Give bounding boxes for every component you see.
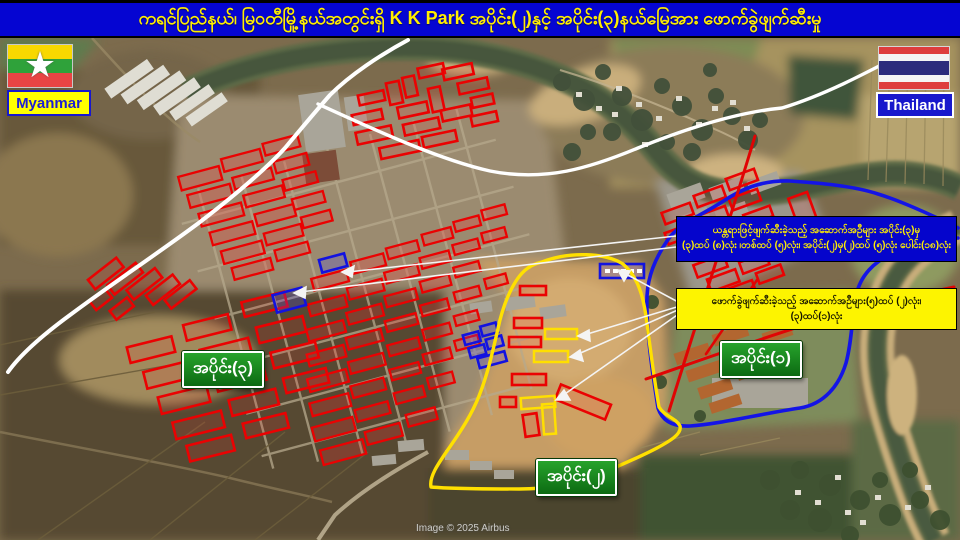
callout-machinery-box: ယန္တရားဖြင့်ဖျက်ဆီးခဲ့သည့် အဆောက်အဦများ … — [676, 216, 957, 262]
satellite-map — [0, 0, 960, 540]
title-text: ကရင်ပြည်နယ်၊ မြဝတီမြို့နယ်အတွင်းရှိ K K … — [139, 6, 822, 33]
map-attribution: Image © 2025 Airbus — [416, 523, 510, 534]
myanmar-flag-star-icon: ★ — [24, 47, 56, 83]
satellite-map-graphic — [0, 0, 960, 540]
myanmar-flag: ★ — [7, 44, 73, 88]
callout-explosive-line2: (၃)ထပ်(၁)လုံး — [677, 309, 956, 324]
title-bar: ကရင်ပြည်နယ်၊ မြဝတီမြို့နယ်အတွင်းရှိ K K … — [0, 0, 960, 38]
myanmar-label: Myanmar — [7, 90, 91, 116]
callout-machinery-line1: ယန္တရားဖြင့်ဖျက်ဆီးခဲ့သည့် အဆောက်အဦများ … — [677, 223, 956, 238]
callout-explosive-line1: ဖောက်ခွဲဖျက်ဆီးခဲ့သည့် အဆောက်အဦများ(၅)ထပ… — [677, 294, 956, 309]
callout-machinery-line2: (၃)ထပ် (၈)လုံး ၊တစ်ထပ် (၅)လုံး၊ အပိုင်း(… — [677, 238, 956, 253]
screenshot-root: ကရင်ပြည်နယ်၊ မြဝတီမြို့နယ်အတွင်းရှိ K K … — [0, 0, 960, 540]
section-label-3: အပိုင်း(၃) — [182, 351, 264, 388]
thailand-label: Thailand — [876, 92, 954, 118]
section-label-1: အပိုင်း(၁) — [720, 341, 802, 378]
callout-explosive-box: ဖောက်ခွဲဖျက်ဆီးခဲ့သည့် အဆောက်အဦများ(၅)ထပ… — [676, 288, 957, 330]
thailand-flag — [878, 46, 950, 90]
section-label-2: အပိုင်း(၂) — [536, 459, 617, 496]
